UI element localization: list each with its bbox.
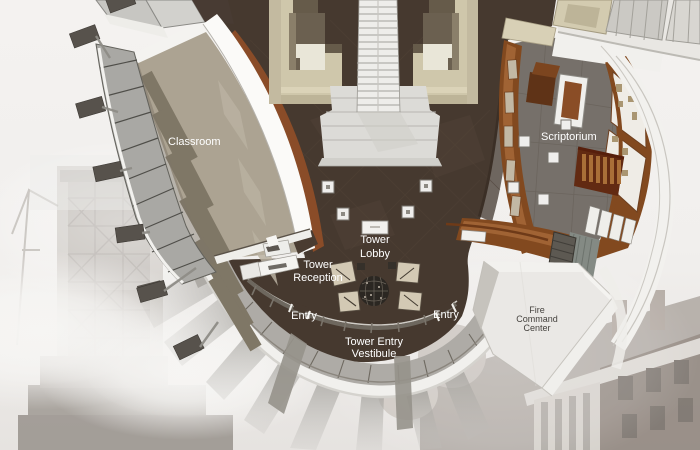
svg-text:Tower: Tower [303, 259, 333, 271]
svg-text:Reception: Reception [293, 272, 343, 284]
svg-text:Vestibule: Vestibule [352, 348, 397, 360]
svg-text:Entry: Entry [433, 309, 459, 321]
svg-text:Entry: Entry [291, 310, 317, 322]
svg-text:Tower Entry: Tower Entry [345, 336, 404, 348]
svg-text:Lobby: Lobby [360, 248, 390, 260]
svg-text:Center: Center [523, 323, 550, 333]
svg-text:Tower: Tower [360, 234, 390, 246]
svg-text:Classroom: Classroom [168, 136, 221, 148]
svg-text:Scriptorium: Scriptorium [541, 131, 597, 143]
